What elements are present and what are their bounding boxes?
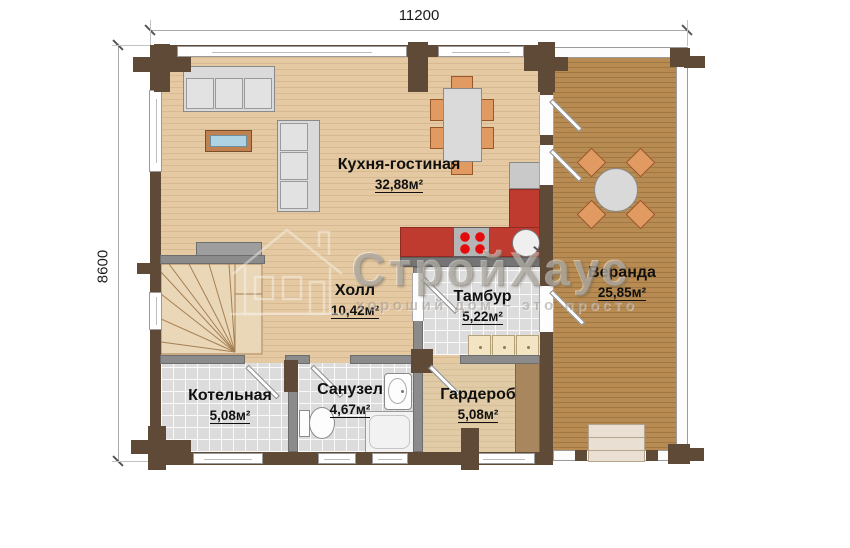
veranda-railing (676, 47, 688, 461)
dimension-width-label: 11200 (379, 7, 459, 24)
round-table-icon (594, 168, 638, 212)
room-name: Гардероб (430, 385, 526, 405)
extension-line (150, 20, 151, 46)
floor-plan: 11200 8600 (0, 0, 850, 548)
kitchen-cabinet (509, 162, 540, 189)
sofa-cushion (186, 78, 214, 109)
drain-dot (401, 390, 404, 393)
log-corner (131, 440, 191, 454)
window (438, 46, 524, 57)
partition-wall (400, 257, 540, 267)
handle-dot (527, 346, 530, 349)
dimension-line-left (118, 45, 119, 462)
tv-icon (205, 130, 252, 152)
partition-wall (160, 255, 265, 264)
wall-post (284, 360, 298, 392)
partition-wall (160, 355, 245, 364)
window (149, 292, 162, 330)
room-label-boiler: Котельная 5,08м² (181, 386, 279, 425)
chair-icon (430, 99, 444, 121)
entry-steps-icon (588, 424, 645, 462)
stove-icon (453, 227, 490, 257)
extension-line (687, 20, 688, 46)
sofa-cushion (244, 78, 272, 109)
handle-dot (479, 346, 482, 349)
dining-table-icon (443, 88, 482, 162)
log-corner (684, 448, 704, 461)
room-name: Тамбур (440, 287, 525, 307)
room-name: Холл (310, 281, 400, 301)
window (473, 453, 535, 464)
room-label-bathroom: Санузел 4,67м² (305, 380, 395, 419)
room-label-wardrobe: Гардероб 5,08м² (430, 385, 526, 424)
dimension-line-top (150, 30, 688, 31)
sofa-icon (183, 66, 275, 112)
window (149, 90, 162, 172)
room-name: Веранда (578, 263, 666, 283)
log-corner (408, 42, 428, 92)
room-label-hall: Холл 10,42м² (310, 281, 400, 320)
extension-line (112, 45, 152, 46)
sofa-icon (277, 120, 320, 212)
log-nub (137, 263, 152, 274)
kitchen-sink-icon (512, 229, 540, 257)
room-area: 5,08м² (210, 408, 251, 424)
room-label-veranda: Веранда 25,85м² (578, 263, 666, 302)
railing-post (575, 450, 587, 461)
log-corner (461, 428, 479, 470)
stairs-icon (161, 264, 263, 355)
sofa-cushion (215, 78, 243, 109)
window (177, 46, 407, 57)
log-corner (133, 57, 191, 72)
room-area: 32,88м² (375, 177, 423, 193)
veranda-railing (553, 47, 680, 58)
sofa-cushion (280, 152, 308, 180)
sofa-cushion (280, 123, 308, 151)
sofa-cushion (280, 181, 308, 209)
chair-icon (430, 127, 444, 149)
tv-screen (210, 135, 247, 147)
step-line (589, 450, 644, 451)
veranda-floor (553, 57, 678, 453)
extension-line (112, 461, 152, 462)
room-area: 10,42м² (331, 303, 379, 319)
room-area: 5,22м² (462, 309, 503, 325)
room-area: 4,67м² (330, 402, 371, 418)
room-label-vestibule: Тамбур 5,22м² (440, 287, 525, 326)
chair-icon (480, 99, 494, 121)
chair-icon (480, 127, 494, 149)
room-name: Кухня-гостиная (318, 155, 480, 175)
dimension-height-label: 8600 (95, 237, 112, 297)
step-line (589, 437, 644, 438)
kitchen-counter (509, 189, 540, 228)
log-corner (684, 56, 705, 68)
room-area: 25,85м² (598, 285, 646, 301)
sink-tap (533, 246, 540, 252)
window (318, 453, 356, 464)
log-corner (524, 57, 568, 71)
room-name: Котельная (181, 386, 279, 406)
stairs-landing (196, 242, 262, 256)
window (372, 453, 408, 464)
partition-wall (460, 355, 540, 364)
railing-post (646, 450, 658, 461)
window (193, 453, 263, 464)
room-name: Санузел (305, 380, 395, 400)
partition-wall (413, 363, 423, 452)
room-label-kitchen-living: Кухня-гостиная 32,88м² (318, 155, 480, 194)
handle-dot (503, 346, 506, 349)
shower-tray (369, 415, 410, 449)
room-area: 5,08м² (458, 407, 499, 423)
